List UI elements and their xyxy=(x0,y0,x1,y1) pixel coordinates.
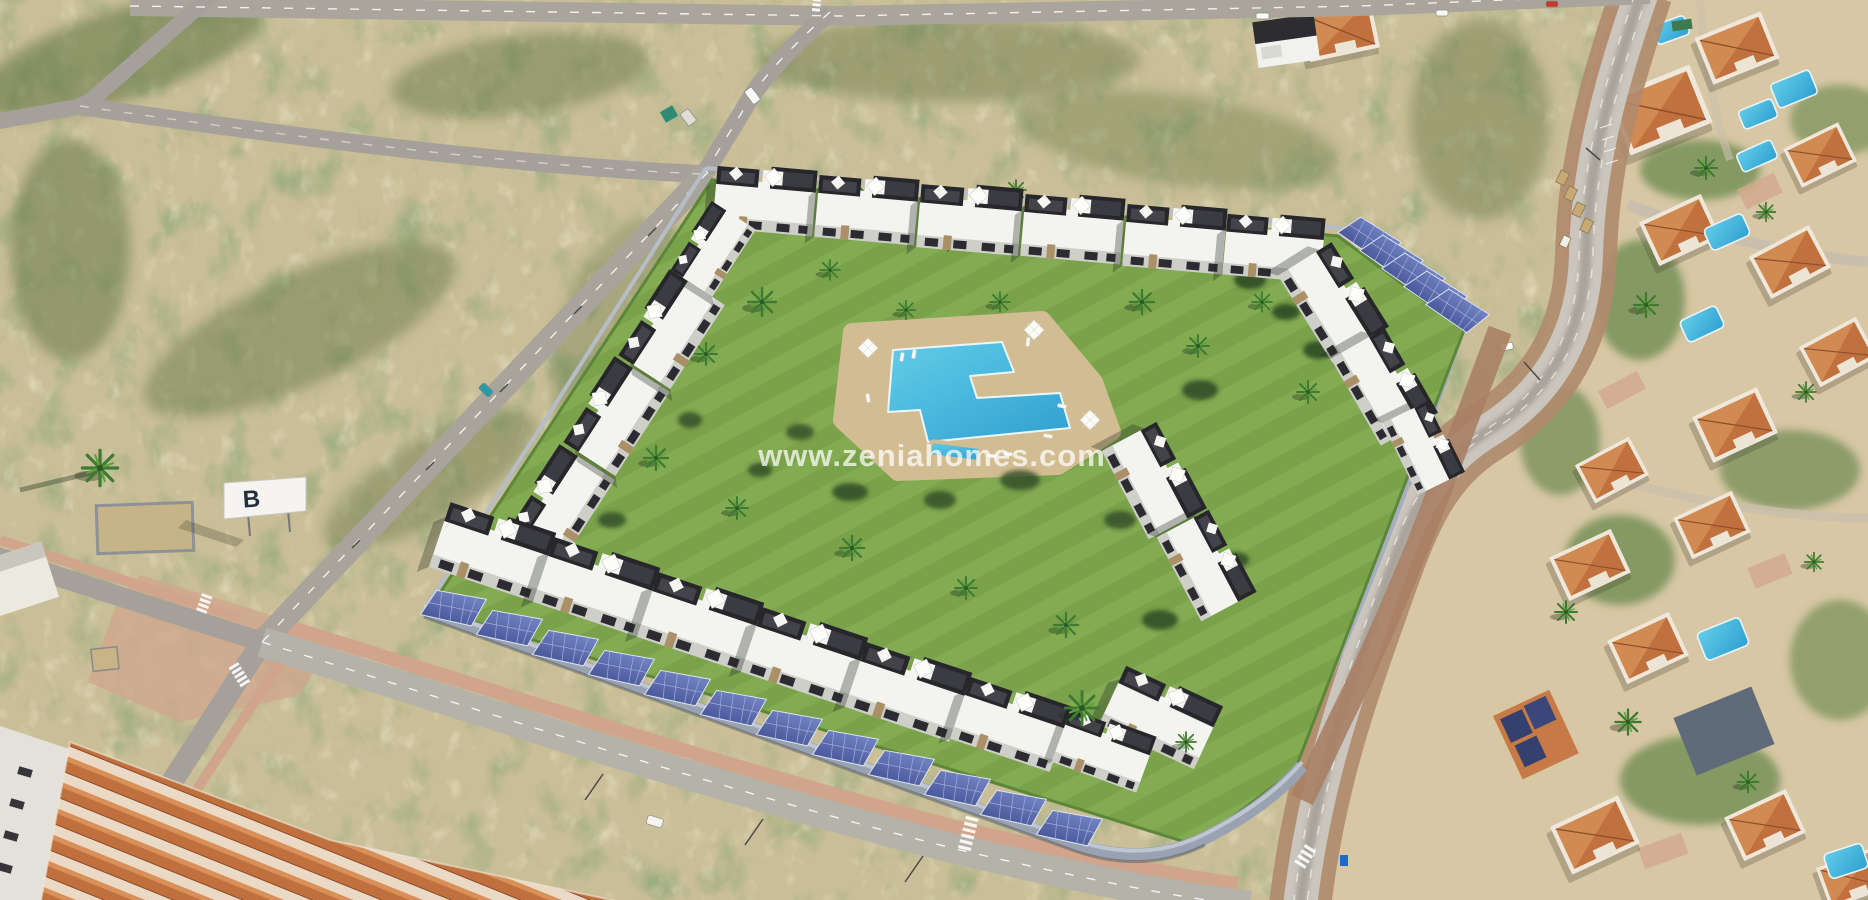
white-car xyxy=(1436,10,1448,16)
billboard-panel xyxy=(224,477,306,519)
blue-road-sign xyxy=(1340,855,1348,866)
aerial-render-scene: B www.zeniahomes.com xyxy=(0,0,1868,900)
shed xyxy=(91,647,119,672)
red-car xyxy=(1546,1,1558,7)
watermark-text: www.zeniahomes.com xyxy=(757,438,1106,473)
white-car xyxy=(1256,13,1269,19)
aerial-photo: B www.zeniahomes.com xyxy=(0,0,1868,900)
flat-roof-building xyxy=(1252,14,1320,68)
billboard-letter: B xyxy=(242,485,261,513)
